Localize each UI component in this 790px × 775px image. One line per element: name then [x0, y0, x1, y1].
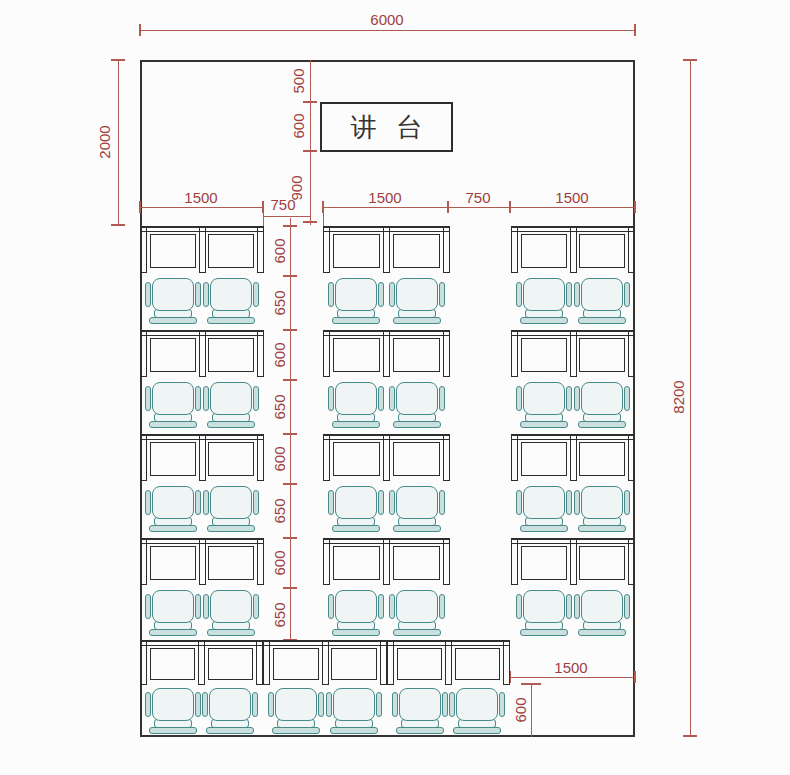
chair-armrest — [203, 386, 209, 411]
dim-wall-to-podium: 500 — [291, 68, 306, 93]
chair-base — [520, 629, 568, 636]
desk-surface — [273, 648, 319, 680]
desk-panel — [570, 538, 577, 585]
desk-panel — [503, 640, 510, 685]
chair-base — [578, 525, 626, 532]
chair-armrest — [439, 594, 445, 619]
chair-base — [578, 317, 626, 324]
chair-base — [332, 317, 380, 324]
floor-plan: 讲台 6000 2000 8200 500 600 900 1500 750 1… — [0, 0, 790, 775]
dim-desk-depth: 600 — [272, 446, 287, 471]
dim-seat-depth: 650 — [272, 394, 287, 419]
desk-surface — [150, 648, 195, 680]
chair-armrest — [268, 692, 274, 717]
chair-seat — [581, 278, 623, 311]
chair-armrest — [195, 490, 201, 515]
chair-armrest — [328, 386, 334, 411]
desk — [323, 434, 450, 481]
chair-base — [207, 421, 255, 428]
desk-surface — [333, 234, 380, 268]
chair-armrest — [516, 386, 522, 411]
desk-surface — [150, 442, 196, 476]
chair-seat — [210, 486, 252, 519]
desk-panel — [199, 434, 206, 481]
desk-panel — [199, 226, 206, 273]
desk-surface — [579, 234, 625, 268]
chair-armrest — [516, 490, 522, 515]
chair-seat — [581, 486, 623, 519]
chair-seat — [333, 688, 375, 721]
chair-base — [520, 421, 568, 428]
dim-tick — [283, 537, 297, 539]
chair-armrest — [389, 386, 395, 411]
chair-armrest — [442, 692, 448, 717]
dim-right-aisle-width: 750 — [465, 190, 490, 205]
chair-seat — [396, 278, 438, 311]
chair-base — [149, 317, 197, 324]
dim-desk-depth: 600 — [272, 550, 287, 575]
dim-tick — [283, 483, 297, 485]
desk-surface — [521, 338, 567, 372]
chair-armrest — [378, 386, 384, 411]
chair-armrest — [574, 594, 580, 619]
chair-armrest — [195, 594, 201, 619]
chair-seat — [152, 278, 194, 311]
chair-seat — [152, 382, 194, 415]
chair-armrest — [392, 692, 398, 717]
dim-tick — [447, 201, 449, 213]
desk-panel — [323, 330, 330, 377]
desk-surface — [333, 338, 380, 372]
chair-base — [396, 727, 444, 734]
chair-seat — [210, 382, 252, 415]
dim-tick — [634, 671, 636, 683]
desk-surface — [150, 234, 196, 268]
chair-seat — [396, 382, 438, 415]
chair-seat — [523, 590, 565, 623]
chair-base — [332, 421, 380, 428]
chair-seat — [523, 486, 565, 519]
desk-panel — [263, 640, 270, 685]
chair-base — [393, 525, 441, 532]
desk-panel — [443, 226, 450, 273]
desk-panel — [322, 640, 329, 685]
podium-label: 讲台 — [331, 110, 443, 145]
chair-armrest — [145, 282, 151, 307]
desk-panel — [140, 434, 147, 481]
dim-line-back-width — [510, 677, 635, 678]
desk-surface — [579, 338, 625, 372]
dim-line-room-depth — [690, 60, 691, 737]
chair-armrest — [328, 594, 334, 619]
chair-armrest — [378, 490, 384, 515]
chair-armrest — [574, 386, 580, 411]
chair-base — [207, 525, 255, 532]
desk-panel — [257, 434, 264, 481]
desk-panel — [257, 330, 264, 377]
chair-seat — [581, 382, 623, 415]
chair-armrest — [253, 386, 259, 411]
chair-base — [149, 525, 197, 532]
desk-surface — [333, 442, 380, 476]
chair-seat — [210, 590, 252, 623]
desk-surface — [208, 338, 254, 372]
chair-armrest — [439, 386, 445, 411]
chair-base — [393, 421, 441, 428]
dim-tick — [303, 221, 317, 223]
dim-tick — [111, 224, 125, 226]
desk — [323, 330, 450, 377]
chair-armrest — [318, 692, 324, 717]
dim-ext — [263, 208, 264, 226]
chair-seat — [335, 590, 377, 623]
desk-panel — [380, 640, 387, 685]
desk-panel — [570, 330, 577, 377]
podium: 讲台 — [320, 102, 453, 152]
desk-panel — [445, 640, 452, 685]
desk-surface — [393, 546, 440, 580]
desk — [140, 640, 263, 685]
dim-tick — [634, 24, 636, 36]
dim-front-zone-depth: 2000 — [97, 125, 112, 158]
chair-armrest — [326, 692, 332, 717]
desk-surface — [208, 234, 254, 268]
chair-seat — [209, 688, 251, 721]
chair-armrest — [376, 692, 382, 717]
dim-tick — [139, 24, 141, 36]
chair-armrest — [328, 282, 334, 307]
desk-surface — [521, 234, 567, 268]
desk — [511, 434, 635, 481]
dim-tick — [683, 735, 697, 737]
chair-armrest — [145, 692, 151, 717]
desk-panel — [511, 538, 518, 585]
chair-base — [393, 629, 441, 636]
chair-base — [453, 727, 501, 734]
dim-line-front-zone — [118, 60, 119, 225]
desk-surface — [333, 546, 380, 580]
chair-seat — [275, 688, 317, 721]
desk — [511, 330, 635, 377]
chair-armrest — [624, 282, 630, 307]
dim-line-back-depth — [531, 684, 532, 737]
desk — [323, 538, 450, 585]
chair-base — [207, 317, 255, 324]
dim-tick — [283, 379, 297, 381]
dim-seat-depth: 650 — [272, 290, 287, 315]
chair-base — [206, 727, 254, 734]
chair-armrest — [624, 386, 630, 411]
dim-podium-depth: 600 — [291, 113, 306, 138]
desk-panel — [443, 330, 450, 377]
chair-base — [149, 421, 197, 428]
chair-armrest — [439, 490, 445, 515]
desk-panel — [511, 226, 518, 273]
chair-seat — [396, 590, 438, 623]
desk-panel — [628, 330, 635, 377]
chair-base — [332, 629, 380, 636]
chair-armrest — [499, 692, 505, 717]
desk-surface — [208, 546, 254, 580]
chair-armrest — [389, 490, 395, 515]
chair-armrest — [516, 282, 522, 307]
desk-surface — [208, 442, 254, 476]
chair-armrest — [203, 490, 209, 515]
chair-seat — [335, 486, 377, 519]
dim-tick — [509, 201, 511, 213]
chair-armrest — [574, 490, 580, 515]
chair-armrest — [566, 490, 572, 515]
dim-seat-depth: 650 — [272, 498, 287, 523]
desk-panel — [628, 538, 635, 585]
desk-surface — [521, 442, 567, 476]
dim-line-left-column — [140, 207, 263, 208]
chair-armrest — [449, 692, 455, 717]
chair-seat — [581, 590, 623, 623]
desk-panel — [570, 434, 577, 481]
chair-base — [578, 421, 626, 428]
desk-panel — [140, 538, 147, 585]
desk-panel — [383, 226, 390, 273]
desk-surface — [579, 546, 625, 580]
chair-armrest — [566, 386, 572, 411]
chair-armrest — [574, 282, 580, 307]
dim-tick — [283, 275, 297, 277]
dim-tick — [283, 587, 297, 589]
chair-base — [578, 629, 626, 636]
chair-base — [272, 727, 320, 734]
dim-line-left-aisle — [263, 216, 310, 217]
chair-armrest — [566, 282, 572, 307]
desk-panel — [323, 434, 330, 481]
chair-base — [393, 317, 441, 324]
desk — [140, 538, 264, 585]
desk — [140, 226, 264, 273]
chair-seat — [152, 486, 194, 519]
chair-armrest — [624, 594, 630, 619]
desk — [323, 226, 450, 273]
chair-seat — [152, 688, 194, 721]
desk-panel — [628, 434, 635, 481]
dim-seat-depth: 650 — [272, 602, 287, 627]
chair-armrest — [253, 490, 259, 515]
chair-seat — [210, 278, 252, 311]
desk-panel — [199, 330, 206, 377]
chair-base — [330, 727, 378, 734]
chair-armrest — [145, 386, 151, 411]
desk-panel — [443, 434, 450, 481]
desk-panel — [511, 330, 518, 377]
chair-armrest — [439, 282, 445, 307]
dim-tick — [283, 225, 297, 227]
chair-armrest — [145, 594, 151, 619]
dim-middle-column-width: 1500 — [368, 190, 401, 205]
dim-back-clear-depth: 600 — [513, 697, 528, 722]
chair-armrest — [566, 594, 572, 619]
desk-panel — [256, 640, 263, 685]
chair-seat — [523, 278, 565, 311]
desk-panel — [511, 434, 518, 481]
chair-seat — [335, 382, 377, 415]
desk-panel — [257, 538, 264, 585]
desk-surface — [150, 546, 196, 580]
chair-seat — [396, 486, 438, 519]
desk-panel — [570, 226, 577, 273]
dim-tick — [322, 201, 324, 213]
dim-line-podium-chain — [310, 60, 311, 225]
chair-armrest — [145, 490, 151, 515]
desk-panel — [140, 330, 147, 377]
dim-left-column-width: 1500 — [184, 190, 217, 205]
dim-tick — [521, 683, 541, 685]
dim-room-width: 6000 — [370, 12, 403, 27]
chair-armrest — [202, 692, 208, 717]
chair-base — [520, 525, 568, 532]
chair-seat — [456, 688, 498, 721]
desk — [140, 434, 264, 481]
desk-panel — [387, 640, 394, 685]
chair-base — [149, 629, 197, 636]
desk-surface — [397, 648, 442, 680]
desk-panel — [198, 640, 205, 685]
dim-tick — [283, 433, 297, 435]
dim-line-right-columns — [323, 207, 635, 208]
dim-tick — [683, 59, 697, 61]
desk-panel — [628, 226, 635, 273]
chair-armrest — [253, 594, 259, 619]
dim-back-clear-width: 1500 — [554, 660, 587, 675]
desk-surface — [208, 648, 253, 680]
desk-surface — [455, 648, 500, 680]
desk-surface — [150, 338, 196, 372]
chair-armrest — [195, 692, 201, 717]
dim-tick — [139, 201, 141, 213]
desk-surface — [579, 442, 625, 476]
chair-seat — [523, 382, 565, 415]
chair-armrest — [378, 594, 384, 619]
chair-seat — [152, 590, 194, 623]
desk-panel — [443, 538, 450, 585]
dim-desk-depth: 600 — [272, 342, 287, 367]
desk — [511, 226, 635, 273]
chair-armrest — [389, 594, 395, 619]
desk-panel — [383, 330, 390, 377]
desk-surface — [393, 338, 440, 372]
desk — [140, 330, 264, 377]
desk-panel — [199, 538, 206, 585]
chair-base — [520, 317, 568, 324]
chair-armrest — [203, 594, 209, 619]
desk-panel — [323, 226, 330, 273]
chair-armrest — [195, 282, 201, 307]
desk-panel — [140, 226, 147, 273]
chair-armrest — [253, 282, 259, 307]
chair-seat — [335, 278, 377, 311]
desk-panel — [383, 538, 390, 585]
chair-seat — [399, 688, 441, 721]
chair-armrest — [516, 594, 522, 619]
desk — [263, 640, 387, 685]
desk-panel — [140, 640, 147, 685]
chair-base — [149, 727, 197, 734]
dim-tick — [283, 329, 297, 331]
chair-armrest — [378, 282, 384, 307]
chair-armrest — [389, 282, 395, 307]
desk-surface — [521, 546, 567, 580]
chair-armrest — [328, 490, 334, 515]
dim-left-aisle-width: 750 — [270, 197, 295, 212]
desk-panel — [323, 538, 330, 585]
desk-panel — [383, 434, 390, 481]
desk-surface — [393, 442, 440, 476]
desk — [387, 640, 510, 685]
dim-right-column-width: 1500 — [555, 190, 588, 205]
dim-desk-depth: 600 — [272, 238, 287, 263]
dim-line-row-chain — [290, 218, 291, 640]
dim-tick — [303, 101, 317, 103]
dim-room-depth: 8200 — [671, 380, 686, 413]
dim-tick — [303, 150, 317, 152]
desk — [511, 538, 635, 585]
dim-tick — [634, 201, 636, 213]
chair-base — [332, 525, 380, 532]
chair-armrest — [195, 386, 201, 411]
chair-armrest — [252, 692, 258, 717]
chair-armrest — [203, 282, 209, 307]
desk-surface — [331, 648, 377, 680]
desk-surface — [393, 234, 440, 268]
dim-tick — [111, 59, 125, 61]
dim-line-room-width — [140, 30, 635, 31]
chair-armrest — [624, 490, 630, 515]
desk-panel — [257, 226, 264, 273]
chair-base — [207, 629, 255, 636]
